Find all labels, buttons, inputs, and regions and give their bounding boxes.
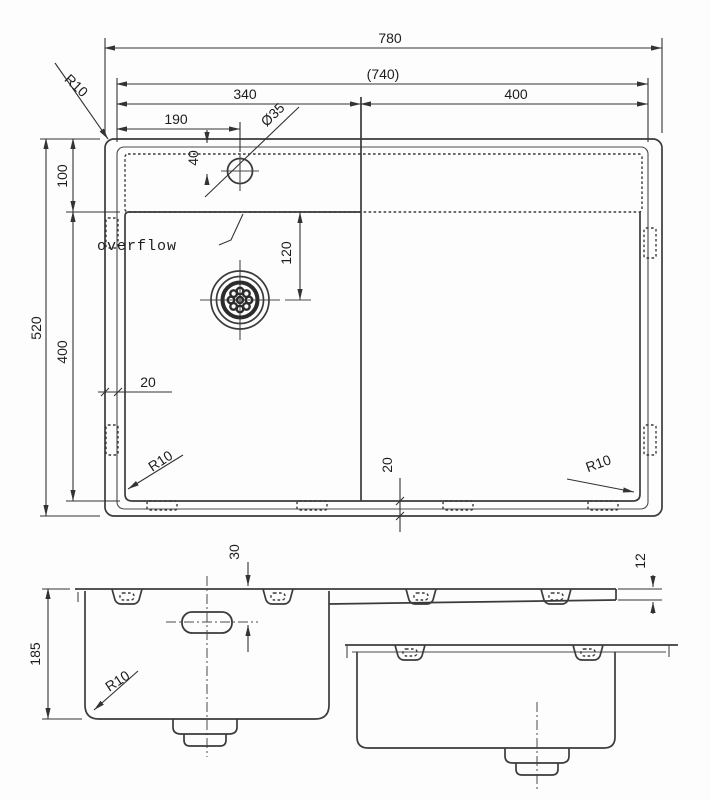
overflow-callout: overflow — [97, 214, 243, 255]
faucet-diameter-leader — [205, 107, 299, 197]
drainboard-underside-line — [329, 600, 616, 604]
dim-overflow-from-rim: 30 — [226, 544, 242, 560]
dim-12-group: 12 — [618, 553, 662, 614]
drain-nut — [184, 734, 226, 746]
dim-rim-left: 20 — [140, 374, 156, 390]
mounting-clip — [541, 589, 571, 604]
label-radius-bottom-right: R10 — [583, 451, 613, 475]
section-view-right-bowl — [345, 645, 678, 789]
mounting-clip — [106, 425, 118, 455]
dim-rim-left-group: 20 — [98, 374, 172, 396]
drain-fitting — [173, 719, 237, 746]
mounting-clip — [406, 589, 436, 604]
mounting-clip — [644, 425, 656, 455]
right-bowl-profile — [357, 652, 615, 748]
dim-120-group: 120 — [278, 213, 311, 300]
section-view-left-bowl: 30 185 R10 12 — [27, 544, 662, 757]
dim-185-group: 185 — [27, 589, 82, 719]
drain-strainer — [200, 260, 280, 340]
dim-overall-depth: 520 — [28, 316, 44, 340]
dim-rim-bottom-group: 20 — [379, 457, 404, 532]
dim-30-group: 30 — [226, 544, 248, 652]
dim-overflow-zone: 100 — [54, 164, 70, 188]
label-radius-top-left: R10 — [62, 71, 92, 100]
dim-left-bowl-width: 340 — [233, 86, 257, 102]
overflow-slot — [166, 612, 258, 633]
overflow-channel-dashed — [125, 154, 642, 212]
mounting-clip — [112, 589, 142, 604]
dimensions-horizontal: 780 (740) 340 400 190 — [105, 30, 662, 152]
dim-drain-offset: 120 — [278, 241, 294, 265]
dim-faucet-from-top: 40 — [185, 150, 201, 166]
drain-flange — [173, 719, 237, 734]
top-view: Ø35 overflow — [28, 30, 662, 532]
faucet-hole: Ø35 — [205, 99, 299, 197]
mounting-clip — [263, 589, 293, 604]
dim-inner-width: (740) — [367, 66, 400, 82]
radius-callouts: R10 R10 R10 — [55, 63, 634, 492]
dim-bowl-height: 185 — [27, 642, 43, 666]
dim-bowl-depth: 400 — [54, 340, 70, 364]
right-drain-fitting — [505, 702, 569, 789]
dim-faucet-offset: 190 — [164, 111, 188, 127]
section-radius-callout: R10 — [94, 667, 138, 710]
dim-rim-bottom: 20 — [379, 457, 395, 473]
label-radius-bottom-left: R10 — [145, 447, 175, 475]
overflow-leader — [219, 214, 243, 245]
sink-rim-inner-line — [117, 147, 648, 509]
sink-technical-drawing-page: Ø35 overflow — [0, 0, 710, 800]
dim-drainboard-drop: 12 — [632, 553, 648, 569]
mounting-clip — [644, 228, 656, 258]
label-section-radius: R10 — [102, 667, 132, 695]
overflow-label: overflow — [97, 238, 177, 255]
technical-drawing-canvas: Ø35 overflow — [0, 0, 710, 800]
dim-overall-width: 780 — [378, 30, 402, 46]
dim-right-section-width: 400 — [504, 86, 528, 102]
dimensions-vertical: 520 100 400 — [28, 139, 120, 516]
